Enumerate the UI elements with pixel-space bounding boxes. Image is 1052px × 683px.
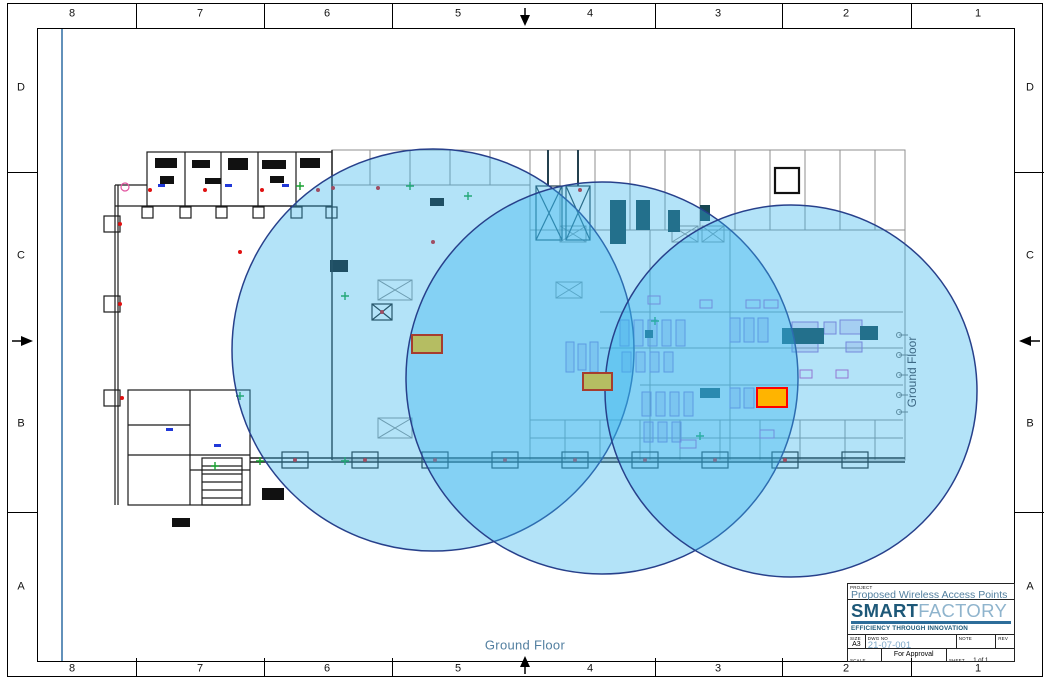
title-block-bottom-row: SCALE NTS For Approval SHEET 1 of 1 bbox=[848, 649, 1014, 661]
access-point-marker-2 bbox=[583, 373, 612, 390]
zone-column-top-4: 4 bbox=[587, 9, 593, 20]
sheet-number-field: SHEET 1 of 1 bbox=[947, 649, 1014, 661]
rev-field-label: REV bbox=[996, 635, 1014, 641]
zone-column-bottom-5: 5 bbox=[455, 664, 461, 675]
dwg-no-field: DWG NO 21-07-001 bbox=[866, 635, 957, 648]
logo-part-factory: FACTORY bbox=[918, 600, 1007, 621]
logo-part-smart: SMART bbox=[851, 600, 918, 621]
zone-row-right-D: D bbox=[1026, 83, 1034, 94]
zone-divider-tick bbox=[136, 658, 137, 677]
zone-row-left-D: D bbox=[17, 83, 25, 94]
zone-divider-tick bbox=[7, 512, 37, 513]
floor-label-vertical: Ground Floor bbox=[905, 337, 919, 408]
zone-divider-tick bbox=[911, 658, 912, 677]
zone-divider-tick bbox=[1015, 512, 1044, 513]
title-block: PROJECT Proposed Wireless Access Points … bbox=[847, 583, 1015, 662]
zone-column-top-2: 2 bbox=[843, 9, 849, 20]
zone-column-top-7: 7 bbox=[197, 9, 203, 20]
approval-status-value: For Approval bbox=[882, 649, 946, 658]
zone-row-left-C: C bbox=[17, 251, 25, 262]
note-field: NOTE bbox=[957, 635, 997, 648]
rev-field: REV bbox=[996, 635, 1014, 648]
dwg-no-field-value: 21-07-001 bbox=[866, 641, 956, 648]
zone-column-top-1: 1 bbox=[975, 9, 981, 20]
zone-divider-tick bbox=[264, 3, 265, 28]
zone-divider-tick bbox=[264, 658, 265, 677]
wifi-coverage-circle-3 bbox=[605, 205, 977, 577]
zone-column-top-3: 3 bbox=[715, 9, 721, 20]
title-block-fields-row: SIZE A3 DWG NO 21-07-001 NOTE REV bbox=[848, 635, 1014, 649]
floor-label: Ground Floor bbox=[485, 638, 565, 653]
title-block-project-row: PROJECT Proposed Wireless Access Points bbox=[848, 584, 1014, 600]
zone-column-top-5: 5 bbox=[455, 9, 461, 20]
logo-tagline: EFFICIENCY THROUGH INNOVATION bbox=[851, 625, 1011, 632]
drawing-sheet: Ground Floor Ground Floor PROJECT Propos… bbox=[0, 0, 1052, 683]
zone-column-bottom-6: 6 bbox=[324, 664, 330, 675]
zone-divider-tick bbox=[136, 3, 137, 28]
floor-plan-drawing: Ground Floor bbox=[0, 0, 1052, 683]
scale-field-label: SCALE bbox=[848, 657, 866, 661]
smartfactory-logo: SMARTFACTORY bbox=[851, 601, 1011, 620]
zone-column-bottom-7: 7 bbox=[197, 664, 203, 675]
access-point-marker-3 bbox=[757, 388, 787, 407]
zone-row-left-B: B bbox=[17, 419, 24, 430]
zone-divider-tick bbox=[392, 3, 393, 28]
zone-column-top-8: 8 bbox=[69, 9, 75, 20]
zone-row-right-C: C bbox=[1026, 251, 1034, 262]
wifi-coverage-layer bbox=[232, 149, 977, 577]
sheet-field-label: SHEET bbox=[947, 657, 965, 661]
zone-column-top-6: 6 bbox=[324, 9, 330, 20]
title-block-logo-row: SMARTFACTORY EFFICIENCY THROUGH INNOVATI… bbox=[848, 600, 1014, 635]
zone-divider-tick bbox=[392, 658, 393, 677]
access-point-marker-1 bbox=[412, 335, 442, 353]
zone-column-bottom-3: 3 bbox=[715, 664, 721, 675]
zone-divider-tick bbox=[782, 3, 783, 28]
zone-row-right-B: B bbox=[1026, 419, 1033, 430]
zone-column-bottom-1: 1 bbox=[975, 664, 981, 675]
zone-column-bottom-8: 8 bbox=[69, 664, 75, 675]
zone-divider-tick bbox=[655, 658, 656, 677]
zone-divider-tick bbox=[782, 658, 783, 677]
zone-column-bottom-2: 2 bbox=[843, 664, 849, 675]
note-field-label: NOTE bbox=[957, 635, 996, 641]
zone-divider-tick bbox=[7, 172, 37, 173]
logo-divider-bar bbox=[851, 621, 1011, 624]
zone-column-bottom-4: 4 bbox=[587, 664, 593, 675]
size-field-value: A3 bbox=[848, 641, 865, 648]
approval-status-field: For Approval bbox=[882, 649, 947, 661]
zone-divider-tick bbox=[911, 3, 912, 28]
scale-field: SCALE NTS bbox=[848, 649, 882, 661]
zone-divider-tick bbox=[655, 3, 656, 28]
sheet-field-value: 1 of 1 bbox=[969, 658, 988, 661]
size-field: SIZE A3 bbox=[848, 635, 866, 648]
zone-divider-tick bbox=[1015, 172, 1044, 173]
zone-row-left-A: A bbox=[17, 582, 24, 593]
zone-row-right-A: A bbox=[1026, 582, 1033, 593]
